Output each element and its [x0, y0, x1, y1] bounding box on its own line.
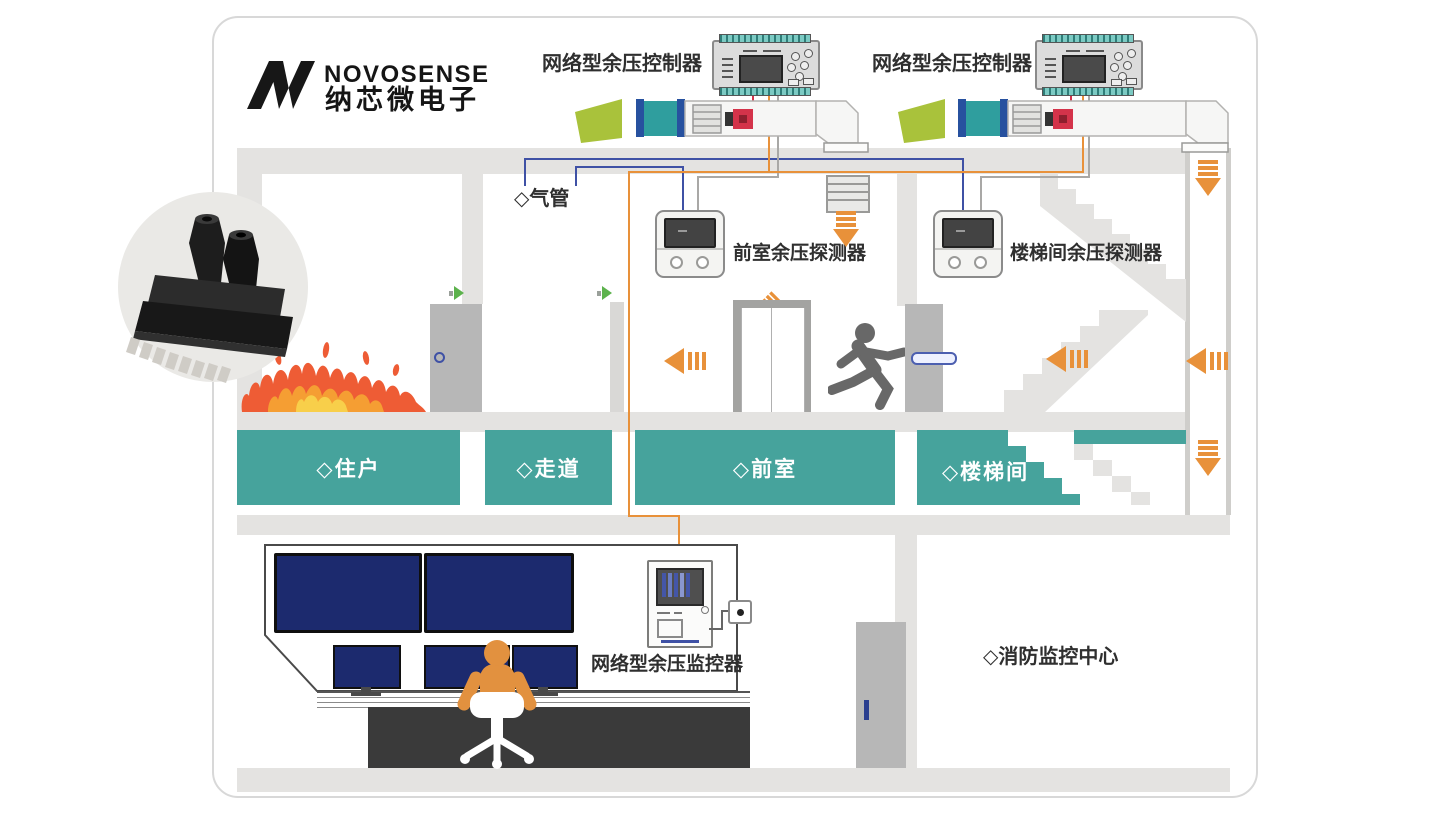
detector-button [974, 256, 987, 269]
logo-text-cn: 纳芯微电子 [325, 87, 480, 114]
logo-text: NOVOSENSE [324, 63, 490, 87]
controller-label-left: 网络型余压控制器 [528, 54, 702, 74]
terminal-strip-icon [1042, 87, 1134, 96]
controller-label-right: 网络型余压控制器 [858, 54, 1032, 74]
air-tube-stub-2 [575, 166, 577, 186]
stairwell-detector [933, 210, 1003, 278]
wall-monitor-2 [424, 553, 574, 633]
ceiling-vent-icon [826, 175, 870, 213]
wall-frontroom-stairwell [897, 174, 917, 306]
airflow-down-arrow-icon [833, 211, 859, 252]
card-slot-icon [657, 619, 683, 638]
relief-valve-icon [597, 285, 613, 306]
chair-backrest [470, 692, 524, 718]
airflow-down-arrow-icon [1195, 160, 1221, 201]
terminal-strip-icon [1042, 34, 1134, 43]
air-tube-line-2 [575, 166, 684, 168]
room-label-corridor: ◇走道 [516, 453, 580, 483]
controller-screen [1062, 55, 1106, 83]
room-band-resident: ◇住户 [237, 430, 460, 505]
elevator-door-split [771, 308, 772, 412]
room-label-resident: ◇住户 [316, 453, 380, 483]
signal-cable-2-drop [980, 176, 982, 212]
detector-screen [664, 218, 716, 248]
ground-slab [237, 768, 1230, 792]
pressure-monitor-unit [647, 560, 713, 648]
air-tube-drop-stairwell [962, 158, 964, 212]
monitor-stand [351, 692, 381, 696]
relief-valve-icon [449, 285, 465, 306]
power-cord [721, 612, 723, 630]
door-handle-icon [434, 352, 445, 363]
airflow-left-arrow-icon [1186, 348, 1228, 379]
detector-button [696, 256, 709, 269]
novosense-logo-icon [246, 60, 320, 110]
elevator [733, 300, 811, 412]
signal-cable-1 [697, 176, 779, 178]
operator-person [440, 630, 560, 785]
wall-corridor-frontroom [610, 302, 624, 412]
room-label-frontroom: ◇前室 [733, 453, 797, 483]
airflow-down-arrow-icon [1195, 440, 1221, 481]
wall-monitor-1 [274, 553, 422, 633]
signal-cable-2 [980, 176, 1090, 178]
bus-line [628, 171, 1084, 173]
airflow-left-arrow-icon [664, 348, 706, 379]
pressure-controller-2 [1035, 40, 1143, 90]
staircase [988, 168, 1232, 418]
pressure-sensor-chip-photo [117, 191, 309, 388]
air-tube-stub-1 [524, 158, 526, 186]
fire-center-label: ◇消防监控中心 [983, 647, 1118, 667]
room-label-stairwell: ◇楼梯间 [942, 456, 1029, 486]
terminal-strip-icon [719, 34, 811, 43]
front-room-detector [655, 210, 725, 278]
pressure-system-diagram: NOVOSENSE 纳芯微电子 ◇住户 ◇走道 ◇前室 [0, 0, 1456, 819]
power-outlet-icon [728, 600, 752, 624]
controller-screen [739, 55, 783, 83]
desk-monitor-1 [333, 645, 401, 689]
air-tube-label: ◇气管 [514, 189, 569, 209]
pressure-controller-1 [712, 40, 820, 90]
wall-resident-corridor [462, 174, 483, 304]
monitor-unit-label: 网络型余压监控器 [582, 655, 752, 674]
supply-duct-assembly [560, 90, 1240, 162]
lower-floor-slab [237, 515, 1230, 535]
airflow-left-arrow-icon [1046, 346, 1088, 377]
detector-screen [942, 218, 994, 248]
fire-center-door [856, 622, 906, 768]
fan-icon [575, 99, 622, 143]
bus-drop [628, 171, 630, 517]
room-band-frontroom: ◇前室 [635, 430, 895, 505]
signal-cable-1-drop [697, 176, 699, 212]
door-handle-icon [864, 700, 869, 720]
indicator-led-icon [701, 606, 709, 614]
stairwell-detector-label: 楼梯间余压探测器 [1010, 244, 1162, 263]
terminal-strip-icon [719, 87, 811, 96]
detector-button [948, 256, 961, 269]
panic-bar-icon [911, 352, 957, 365]
detector-button [670, 256, 683, 269]
bus-jog [628, 515, 680, 517]
room-band-corridor: ◇走道 [485, 430, 612, 505]
